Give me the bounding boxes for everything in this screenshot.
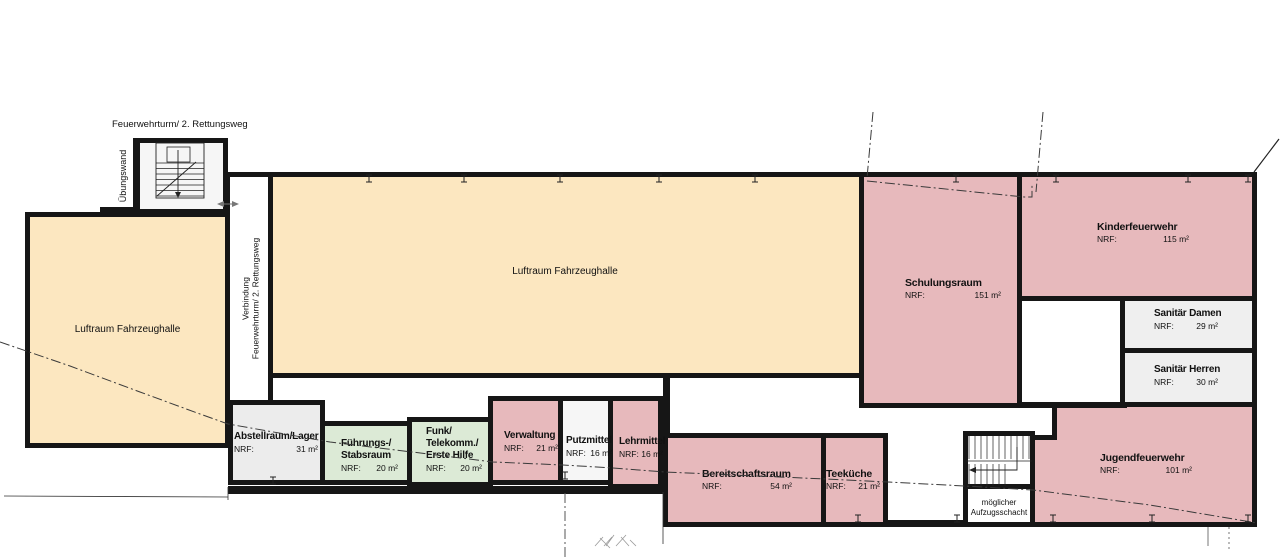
room-label-bereitschaftsraum: Bereitschaftsraum NRF: 54 m² xyxy=(702,468,792,491)
nrf-label: NRF: xyxy=(566,448,586,458)
vegetation-sketch-icon xyxy=(595,535,636,548)
room-area-row: NRF: 115 m² xyxy=(1097,234,1189,244)
room-label-teekueche: Teeküche NRF: 21 m² xyxy=(826,468,880,491)
room-name: Luftraum Fahrzeughalle xyxy=(45,324,210,335)
nrf-label: NRF: xyxy=(1100,465,1120,475)
room-label-jugendfeuerwehr: Jugendfeuerwehr NRF: 101 m² xyxy=(1100,452,1192,475)
room-label-lehrmittel: Lehrmittel NRF: 16 m² xyxy=(619,436,663,459)
room-name-line1: Führungs-/ xyxy=(341,438,398,450)
room-name-line2: Telekomm./ xyxy=(426,438,482,450)
room-area-row: NRF: 101 m² xyxy=(1100,465,1192,475)
nrf-value: 30 m² xyxy=(1196,377,1218,387)
nrf-label: NRF: xyxy=(1154,321,1174,331)
label-verbindung-line1: Verbindung xyxy=(241,234,251,364)
nrf-value: 54 m² xyxy=(770,481,792,491)
room-label-putzmittel: Putzmittel NRF: 16 m² xyxy=(566,435,612,458)
room-name-line3: Erste Hilfe xyxy=(426,450,482,462)
room-name: Teeküche xyxy=(826,468,880,480)
nrf-value: 20 m² xyxy=(376,463,398,473)
nrf-value: 29 m² xyxy=(1196,321,1218,331)
nrf-label: NRF: xyxy=(504,443,524,453)
nrf-value: 101 m² xyxy=(1166,465,1192,475)
room-area-row: NRF: 20 m² xyxy=(426,463,482,473)
nrf-value: 151 m² xyxy=(975,290,1001,300)
nrf-value: 21 m² xyxy=(858,481,880,491)
corner-diagonal-line xyxy=(1254,139,1279,172)
label-feuerwehrturm: Feuerwehrturm/ 2. Rettungsweg xyxy=(112,119,248,130)
room-area-row: NRF: 16 m² xyxy=(566,448,612,458)
label-verbindung-line2: Feuerwehrturm/ 2. Rettungsweg xyxy=(251,234,261,364)
room-area-row: NRF: 30 m² xyxy=(1154,377,1218,387)
room-name: Jugendfeuerwehr xyxy=(1100,452,1192,464)
nrf-label: NRF: xyxy=(826,481,846,491)
floor-plan: Feuerwehrturm/ 2. Rettungsweg Übungswand… xyxy=(0,0,1280,560)
room-name: Verwaltung xyxy=(504,430,558,442)
room-area-row: NRF: 20 m² xyxy=(341,463,398,473)
nrf-label: NRF: xyxy=(1097,234,1117,244)
room-label-abstellraum: Abstellraum/Lager NRF: 31 m² xyxy=(234,431,318,454)
nrf-value: 115 m² xyxy=(1163,234,1189,244)
room-jugendfeuerwehr xyxy=(1028,435,1257,527)
room-name-line1: möglicher xyxy=(963,498,1035,508)
nrf-label: NRF: xyxy=(905,290,925,300)
room-area-row: NRF: 29 m² xyxy=(1154,321,1218,331)
room-label-fuehrungsraum: Führungs-/ Stabsraum NRF: 20 m² xyxy=(341,438,398,473)
nrf-value: 16 m² xyxy=(590,448,612,458)
room-label-schulungsraum: Schulungsraum NRF: 151 m² xyxy=(905,277,1001,300)
section-line-top-left xyxy=(867,112,873,178)
nrf-value: 16 m² xyxy=(641,449,663,459)
room-name: Kinderfeuerwehr xyxy=(1097,221,1189,233)
room-label-funkraum: Funk/ Telekomm./ Erste Hilfe NRF: 20 m² xyxy=(426,426,482,473)
nrf-label: NRF: xyxy=(702,481,722,491)
nrf-value: 20 m² xyxy=(460,463,482,473)
room-name: Luftraum Fahrzeughalle xyxy=(465,266,665,277)
nrf-label: NRF: xyxy=(619,449,639,459)
room-area-row: NRF: 21 m² xyxy=(826,481,880,491)
room-area-row: NRF: 21 m² xyxy=(504,443,558,453)
room-stair-tower xyxy=(133,138,228,214)
room-name-line2: Aufzugsschacht xyxy=(963,508,1035,518)
room-label-luftraum-left: Luftraum Fahrzeughalle xyxy=(45,324,210,335)
room-label-kinderfeuerwehr: Kinderfeuerwehr NRF: 115 m² xyxy=(1097,221,1189,244)
room-label-luftraum-main: Luftraum Fahrzeughalle xyxy=(465,266,665,277)
room-area-row: NRF: 16 m² xyxy=(619,449,663,459)
room-name: Bereitschaftsraum xyxy=(702,468,792,480)
wing-bottom-wall xyxy=(228,486,665,494)
nrf-label: NRF: xyxy=(426,463,446,473)
terrace-bottom-wall xyxy=(884,520,967,527)
terrain-line xyxy=(4,487,663,544)
connector-wall xyxy=(663,375,670,437)
nrf-value: 31 m² xyxy=(296,444,318,454)
nrf-label: NRF: xyxy=(1154,377,1174,387)
nrf-label: NRF: xyxy=(341,463,361,473)
room-right-stairs xyxy=(963,431,1035,489)
room-name: Abstellraum/Lager xyxy=(234,431,318,443)
room-label-verwaltung: Verwaltung NRF: 21 m² xyxy=(504,430,558,453)
corridor-bottom-wall xyxy=(1017,402,1127,408)
room-label-sanitaer-damen: Sanitär Damen NRF: 29 m² xyxy=(1154,308,1218,331)
nrf-label: NRF: xyxy=(234,444,254,454)
room-label-aufzugsschacht: möglicher Aufzugsschacht xyxy=(963,498,1035,517)
room-name-line1: Funk/ xyxy=(426,426,482,438)
room-name: Sanitär Herren xyxy=(1154,364,1218,376)
room-label-sanitaer-herren: Sanitär Herren NRF: 30 m² xyxy=(1154,364,1218,387)
label-verbindung: Verbindung Feuerwehrturm/ 2. Rettungsweg xyxy=(241,234,262,364)
room-area-row: NRF: 151 m² xyxy=(905,290,1001,300)
label-uebungswand: Übungswand xyxy=(118,141,130,211)
room-area-row: NRF: 31 m² xyxy=(234,444,318,454)
room-name-line2: Stabsraum xyxy=(341,450,398,462)
room-name: Sanitär Damen xyxy=(1154,308,1218,320)
nrf-value: 21 m² xyxy=(536,443,558,453)
room-area-row: NRF: 54 m² xyxy=(702,481,792,491)
room-name: Schulungsraum xyxy=(905,277,1001,289)
room-name: Putzmittel xyxy=(566,435,612,447)
room-name: Lehrmittel xyxy=(619,436,663,448)
